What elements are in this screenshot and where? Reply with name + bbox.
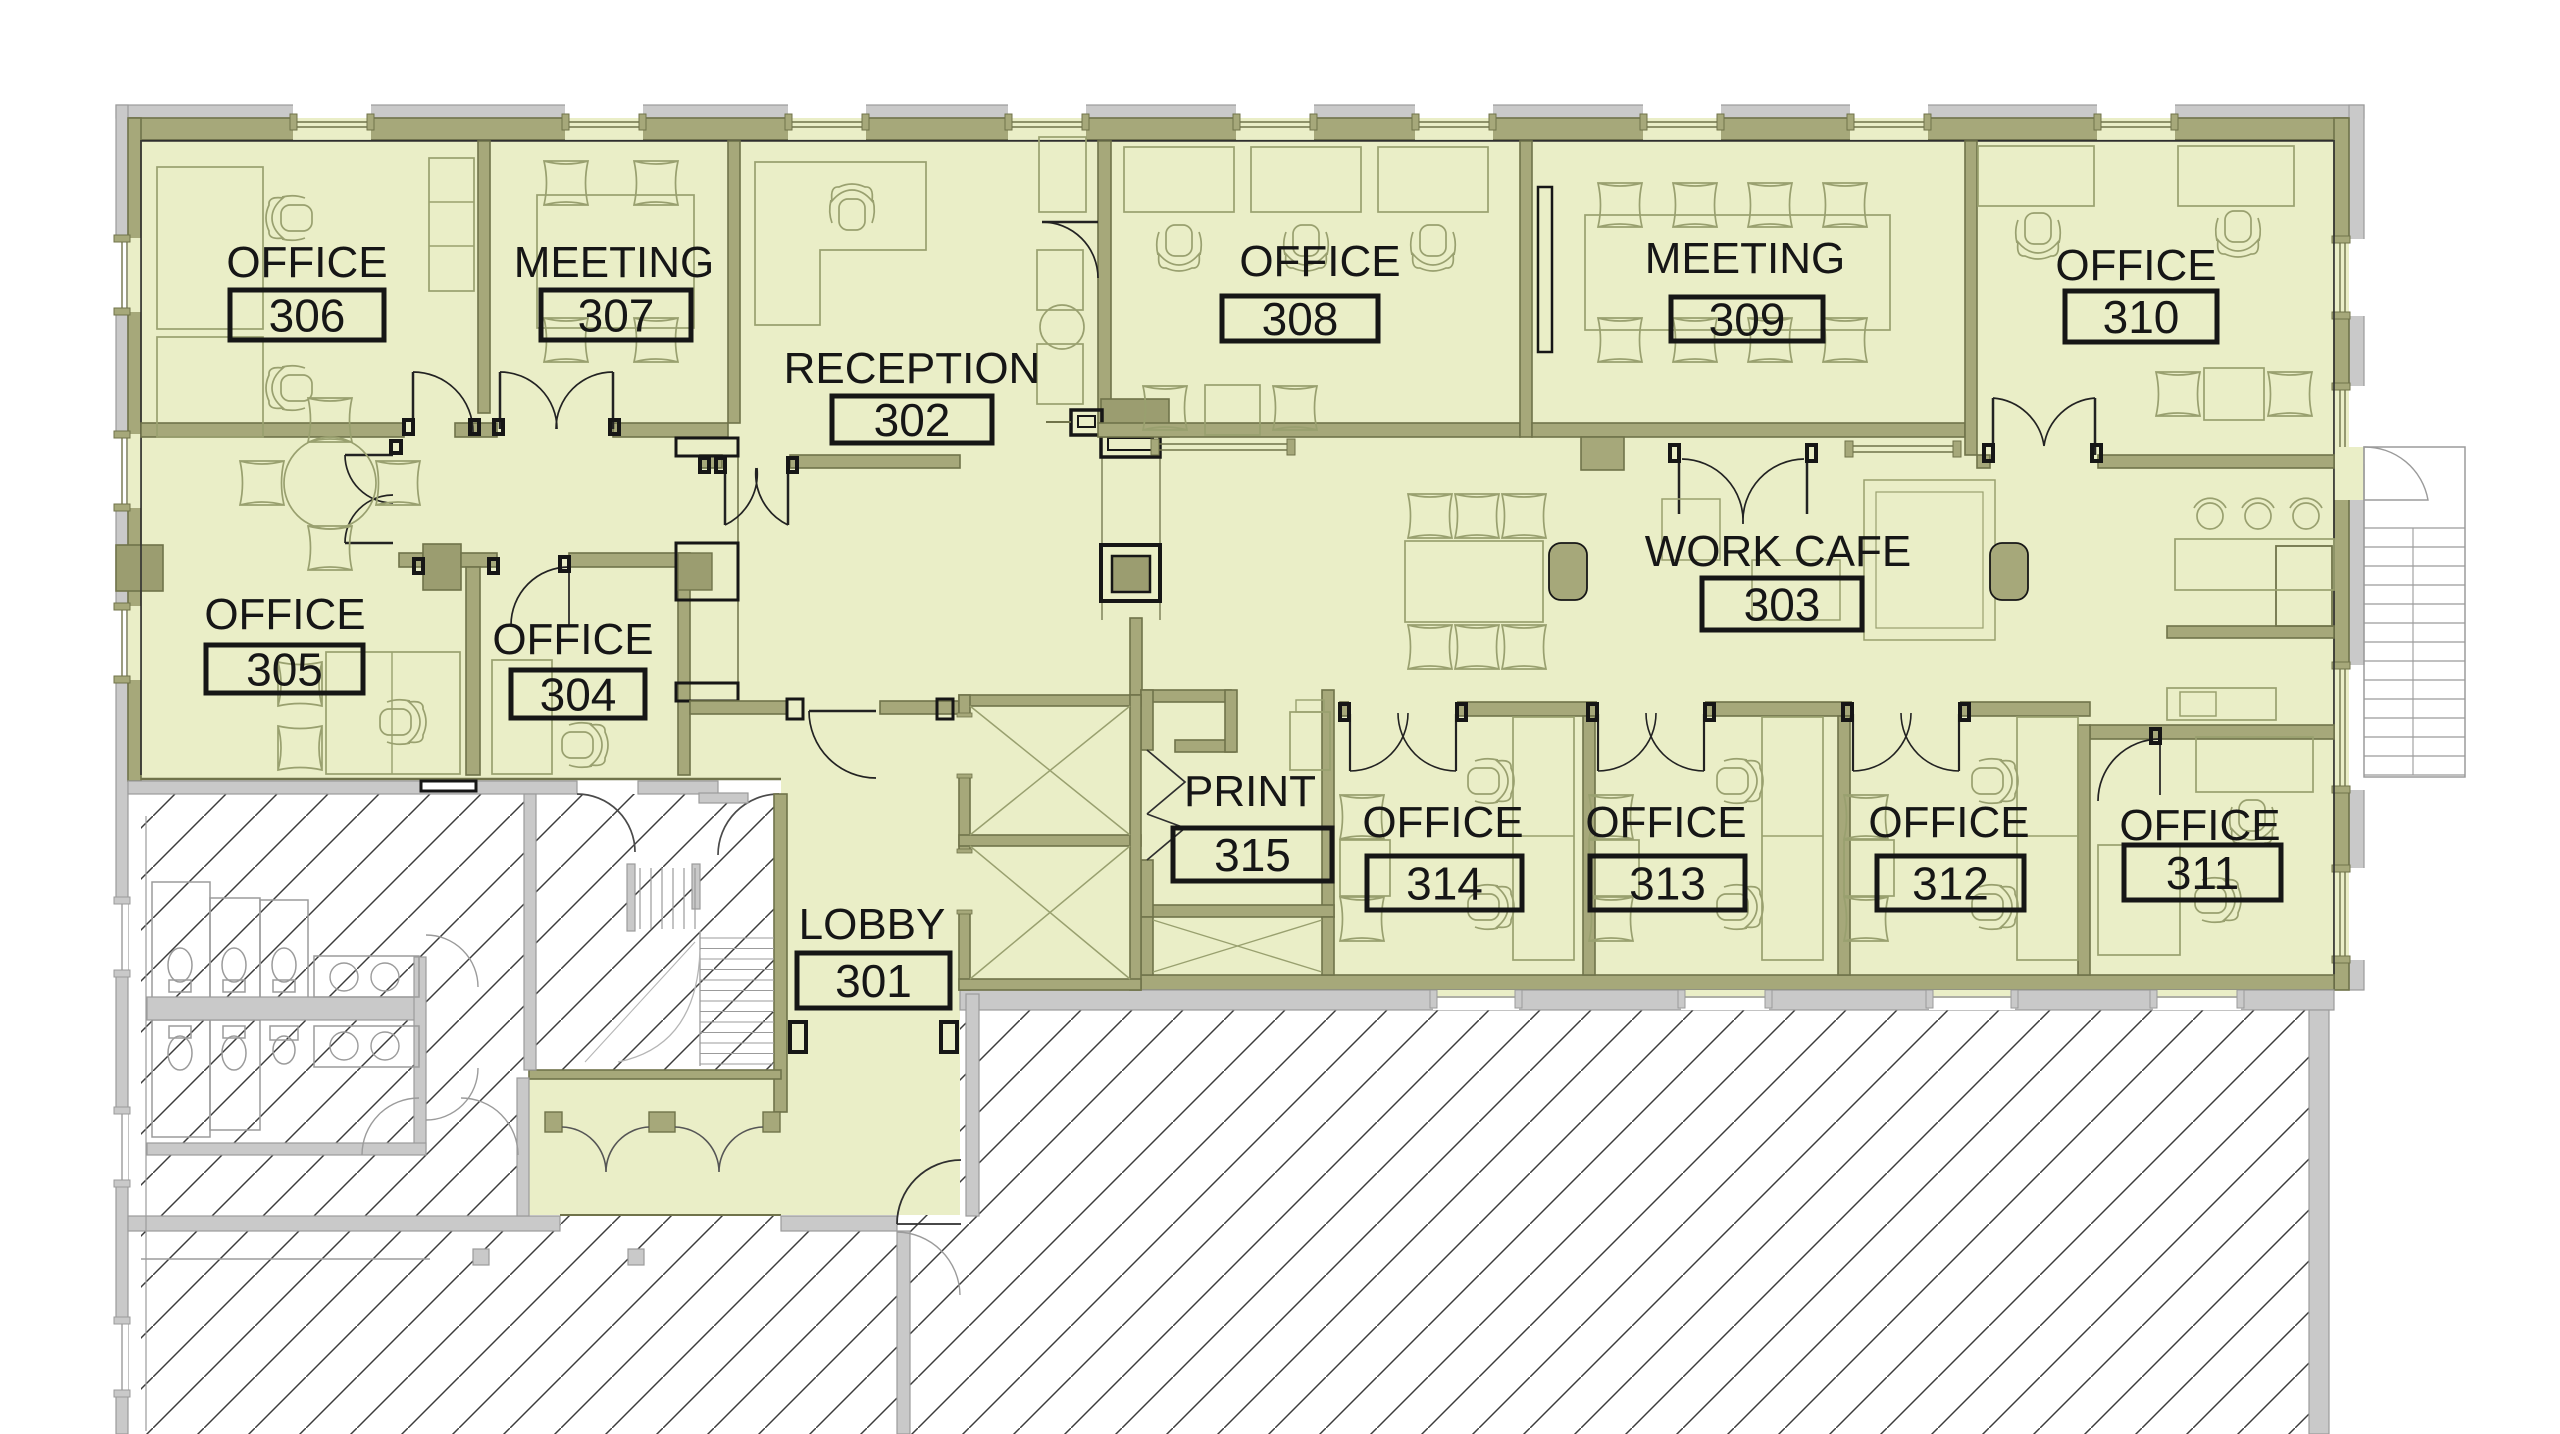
svg-text:315: 315 (1214, 829, 1291, 881)
svg-text:310: 310 (2103, 291, 2180, 343)
svg-text:307: 307 (578, 290, 655, 342)
svg-text:302: 302 (874, 394, 951, 446)
svg-text:311: 311 (2166, 847, 2239, 899)
svg-text:OFFICE: OFFICE (1868, 798, 2029, 847)
svg-text:309: 309 (1709, 294, 1786, 346)
svg-text:OFFICE: OFFICE (204, 590, 365, 639)
svg-text:306: 306 (269, 290, 346, 342)
svg-text:304: 304 (540, 669, 617, 721)
svg-text:OFFICE: OFFICE (226, 238, 387, 287)
svg-text:WORK CAFE: WORK CAFE (1645, 527, 1911, 576)
svg-text:301: 301 (835, 955, 912, 1007)
svg-text:313: 313 (1629, 858, 1706, 910)
svg-text:LOBBY: LOBBY (799, 900, 946, 949)
svg-text:OFFICE: OFFICE (1585, 798, 1746, 847)
svg-text:305: 305 (246, 644, 323, 696)
svg-text:303: 303 (1744, 579, 1821, 631)
svg-text:OFFICE: OFFICE (2055, 241, 2216, 290)
svg-text:308: 308 (1262, 293, 1339, 345)
svg-text:OFFICE: OFFICE (1362, 798, 1523, 847)
svg-text:314: 314 (1406, 858, 1483, 910)
svg-text:RECEPTION: RECEPTION (784, 344, 1041, 393)
svg-text:MEETING: MEETING (1645, 234, 1845, 283)
svg-text:OFFICE: OFFICE (1239, 237, 1400, 286)
svg-text:MEETING: MEETING (514, 238, 714, 287)
svg-text:PRINT: PRINT (1184, 767, 1316, 816)
svg-text:312: 312 (1912, 858, 1989, 910)
svg-text:OFFICE: OFFICE (492, 615, 653, 664)
